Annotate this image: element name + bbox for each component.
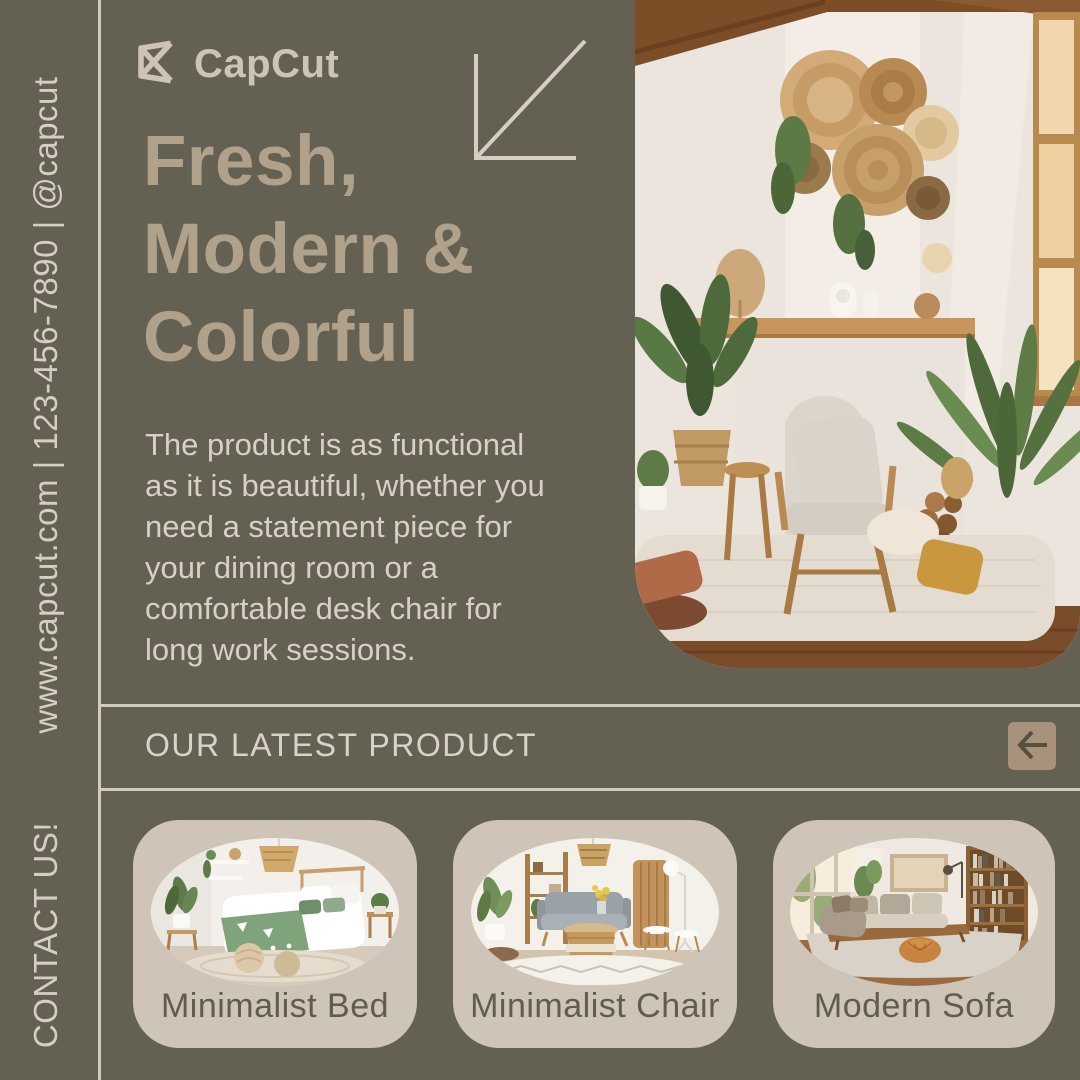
section-divider-top <box>98 704 1080 707</box>
product-label: Minimalist Chair <box>453 987 737 1026</box>
headline-line-2: Modern & <box>143 206 474 294</box>
product-card-minimalist-bed[interactable]: Minimalist Bed <box>133 820 417 1048</box>
social-post-canvas: www.capcut.com | 123-456-7890 | @capcut … <box>0 0 1080 1080</box>
minimalist-chair-photo <box>471 838 719 986</box>
headline-line-1: Fresh, <box>143 118 474 206</box>
bedroom-illustration <box>151 838 399 986</box>
minimalist-bed-photo <box>151 838 399 986</box>
contact-us-label: CONTACT US! <box>27 822 65 1048</box>
product-label: Modern Sofa <box>773 987 1055 1026</box>
living-room-illustration <box>635 0 1080 668</box>
sitting-room-illustration <box>471 838 719 986</box>
brand-logo: CapCut <box>128 36 339 93</box>
modern-sofa-photo <box>790 838 1038 986</box>
lounge-illustration <box>790 838 1038 986</box>
desc-line: long work sessions. <box>145 629 545 670</box>
desc-line: your dining room or a <box>145 547 545 588</box>
product-card-minimalist-chair[interactable]: Minimalist Chair <box>453 820 737 1048</box>
brand-name: CapCut <box>194 42 339 87</box>
sidebar-divider-line <box>98 0 101 1080</box>
section-divider-bottom <box>98 788 1080 791</box>
product-card-modern-sofa[interactable]: Modern Sofa <box>773 820 1055 1048</box>
back-arrow-button[interactable] <box>1008 722 1056 770</box>
capcut-logo-icon <box>128 36 180 93</box>
desc-line: as it is beautiful, whether you <box>145 465 545 506</box>
arrow-left-icon <box>1015 729 1049 764</box>
desc-line: The product is as functional <box>145 424 545 465</box>
desc-line: comfortable desk chair for <box>145 588 545 629</box>
contact-info-text: www.capcut.com | 123-456-7890 | @capcut <box>27 76 65 733</box>
desc-line: need a statement piece for <box>145 506 545 547</box>
headline: Fresh, Modern & Colorful <box>143 118 474 382</box>
hero-description: The product is as functional as it is be… <box>145 424 545 670</box>
section-title: OUR LATEST PRODUCT <box>145 727 537 764</box>
hero-living-room-photo <box>635 0 1080 668</box>
arrow-down-left-icon <box>472 38 588 162</box>
product-label: Minimalist Bed <box>133 987 417 1026</box>
headline-line-3: Colorful <box>143 294 474 382</box>
